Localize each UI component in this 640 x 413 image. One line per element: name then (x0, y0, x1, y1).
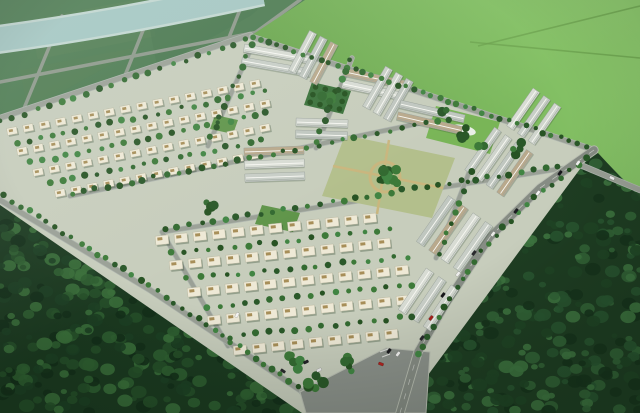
aerial-render-viewport (0, 0, 640, 413)
lighting-vignette (0, 0, 640, 413)
masterplan-aerial-render (0, 0, 640, 413)
